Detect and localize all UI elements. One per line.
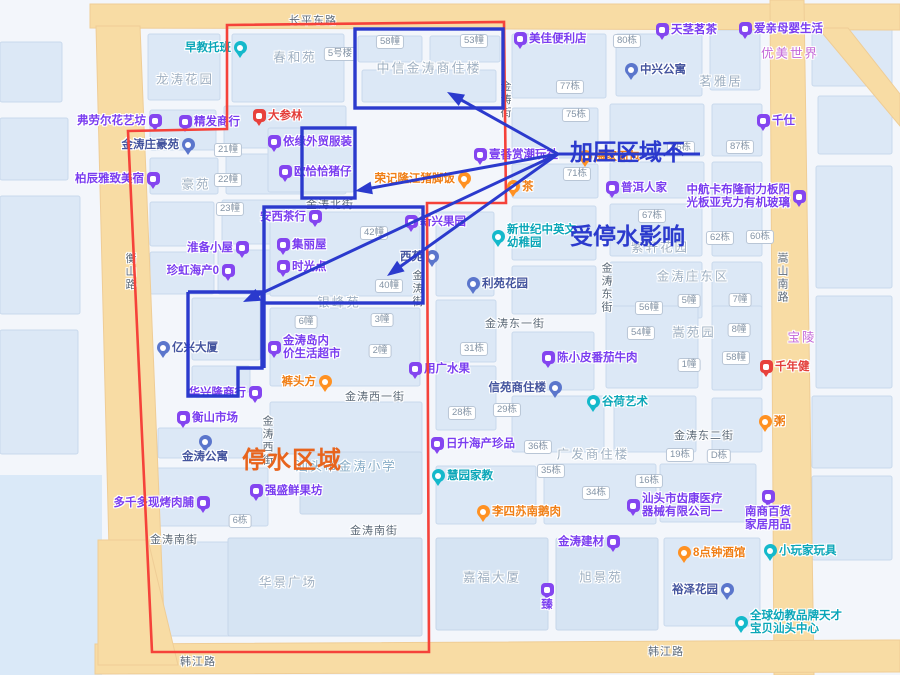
purple-pin-icon[interactable] bbox=[474, 148, 487, 161]
orange-pin-icon[interactable] bbox=[458, 172, 471, 185]
building-badge: 54幢 bbox=[627, 326, 655, 340]
road-label: 金涛街 bbox=[409, 270, 425, 309]
building-badge: 42幢 bbox=[360, 226, 388, 240]
poi-label: 强盛鲜果坊 bbox=[265, 485, 323, 498]
pressure-note-line1: 加压区域不 bbox=[570, 138, 685, 166]
poi-label: 小玩家玩具 bbox=[779, 545, 837, 558]
building-badge: 28栋 bbox=[448, 406, 476, 420]
poi-label: 千仕 bbox=[772, 115, 795, 128]
building-badge: 22幢 bbox=[214, 173, 242, 187]
purple-pin-icon[interactable] bbox=[656, 23, 669, 36]
area-label: 华景广场 bbox=[259, 572, 317, 591]
building-badge: 8幢 bbox=[728, 323, 751, 337]
area-label: 茗雅居 bbox=[699, 71, 743, 90]
area-label: 中信金涛商住楼 bbox=[376, 58, 481, 77]
building-badge: 16栋 bbox=[635, 474, 663, 488]
purple-pin-icon[interactable] bbox=[277, 260, 290, 273]
purple-pin-icon[interactable] bbox=[147, 172, 160, 185]
purple-pin-icon[interactable] bbox=[514, 32, 527, 45]
poi-label: 李四苏南鹅肉 bbox=[492, 506, 561, 519]
poi-label: 柏辰雅致美宿 bbox=[75, 173, 144, 186]
poi-label: 中航卡布隆耐力板阳 光板亚克力有机玻璃 bbox=[687, 184, 791, 210]
building-badge: 35栋 bbox=[537, 464, 565, 478]
teal-pin-icon[interactable] bbox=[587, 395, 600, 408]
blue-pin-icon[interactable] bbox=[199, 435, 212, 448]
poi-label: 粥 bbox=[774, 416, 786, 429]
purple-pin-icon[interactable] bbox=[236, 241, 249, 254]
poi-label: 弗劳尔花艺坊 bbox=[77, 115, 146, 128]
purple-pin-icon[interactable] bbox=[197, 496, 210, 509]
poi-label: 千年健 bbox=[775, 361, 810, 374]
building-badge: 23幢 bbox=[216, 202, 244, 216]
building-badge: 60栋 bbox=[746, 230, 774, 244]
blue-pin-icon[interactable] bbox=[182, 138, 195, 151]
poi-label: 多千多现烤肉脯 bbox=[114, 497, 195, 510]
road-label: 嵩山南路 bbox=[774, 252, 790, 304]
poi-label: 8点钟酒馆 bbox=[693, 547, 745, 560]
purple-pin-icon[interactable] bbox=[309, 210, 322, 223]
purple-pin-icon[interactable] bbox=[249, 386, 262, 399]
blue-pin-icon[interactable] bbox=[625, 63, 638, 76]
poi-label: 爱亲母婴生活 bbox=[754, 23, 823, 36]
poi-label: 利苑花园 bbox=[482, 278, 528, 291]
blue-pin-icon[interactable] bbox=[157, 341, 170, 354]
poi-label: 南商百货 家居用品 bbox=[745, 506, 791, 532]
building-badge: 5号楼 bbox=[324, 47, 356, 61]
blue-pin-icon[interactable] bbox=[549, 381, 562, 394]
road-label: 金涛街 bbox=[497, 81, 513, 120]
poi-label: 金涛公寓 bbox=[182, 451, 228, 464]
pressure-zone-note: 加压区域不 受停水影响 bbox=[570, 82, 685, 306]
purple-pin-icon[interactable] bbox=[542, 351, 555, 364]
poi-label: 金涛建材 bbox=[558, 536, 604, 549]
teal-pin-icon[interactable] bbox=[234, 41, 247, 54]
building-badge: 87栋 bbox=[726, 140, 754, 154]
poi-label: 裤头方 bbox=[282, 376, 317, 389]
poi-label: 天茎茗茶 bbox=[671, 24, 717, 37]
purple-pin-icon[interactable] bbox=[409, 362, 422, 375]
road-label: 金涛南街 bbox=[150, 531, 198, 547]
red-pin-icon[interactable] bbox=[760, 360, 773, 373]
poi-label: 臻 bbox=[541, 599, 553, 612]
poi-label: 大参林 bbox=[268, 110, 303, 123]
poi-label: 美佳便利店 bbox=[529, 33, 587, 46]
blue-pin-icon[interactable] bbox=[467, 277, 480, 290]
road-label: 金涛南街 bbox=[350, 522, 398, 538]
poi-label: 欧恰恰猪仔 bbox=[294, 166, 352, 179]
poi-label: 集丽屋 bbox=[292, 239, 327, 252]
pressure-note-line2: 受停水影响 bbox=[570, 222, 685, 250]
purple-pin-icon[interactable] bbox=[541, 583, 554, 596]
building-badge: 6幢 bbox=[295, 315, 318, 329]
road-label: 长平东路 bbox=[289, 12, 337, 28]
purple-pin-icon[interactable] bbox=[627, 499, 640, 512]
orange-pin-icon[interactable] bbox=[319, 375, 332, 388]
building-badge: 58幢 bbox=[376, 35, 404, 49]
purple-pin-icon[interactable] bbox=[431, 437, 444, 450]
purple-pin-icon[interactable] bbox=[405, 215, 418, 228]
poi-label: 淮备小屋 bbox=[187, 242, 233, 255]
poi-label: 金涛岛内 价生活超市 bbox=[283, 335, 341, 361]
poi-label: 用广水果 bbox=[424, 363, 470, 376]
area-label: 嘉福大厦 bbox=[463, 567, 521, 586]
road-label: 金涛东二街 bbox=[674, 427, 734, 443]
purple-pin-icon[interactable] bbox=[762, 490, 775, 503]
building-badge: 29栋 bbox=[493, 403, 521, 417]
road-label: 金涛西一街 bbox=[345, 388, 405, 404]
teal-pin-icon[interactable] bbox=[492, 230, 505, 243]
water-area bbox=[0, 475, 102, 675]
building-badge: 7幢 bbox=[729, 293, 752, 307]
poi-label: 衡山市场 bbox=[192, 412, 238, 425]
building-badge: 31栋 bbox=[460, 342, 488, 356]
purple-pin-icon[interactable] bbox=[607, 535, 620, 548]
poi-label: 谷荷艺术 bbox=[602, 396, 648, 409]
purple-pin-icon[interactable] bbox=[268, 135, 281, 148]
area-label: 龙涛花园 bbox=[156, 69, 214, 88]
orange-pin-icon[interactable] bbox=[507, 180, 520, 193]
road-label: 韩江路 bbox=[180, 653, 216, 669]
building-badge: 58幢 bbox=[722, 351, 750, 365]
area-label: 嵩苑园 bbox=[672, 322, 716, 341]
poi-label: 早教托班 bbox=[185, 42, 231, 55]
purple-pin-icon[interactable] bbox=[277, 238, 290, 251]
building-badge: 2幢 bbox=[369, 344, 392, 358]
purple-pin-icon[interactable] bbox=[268, 341, 281, 354]
red-pin-icon[interactable] bbox=[253, 109, 266, 122]
poi-label: 汕头市齿康医疗 器械有限公司一 bbox=[642, 493, 723, 519]
poi-label: 中兴公寓 bbox=[640, 64, 686, 77]
purple-pin-icon[interactable] bbox=[179, 115, 192, 128]
poi-label: 时光点 bbox=[292, 261, 327, 274]
blue-pin-icon[interactable] bbox=[426, 250, 439, 263]
area-label: 优美世界 bbox=[761, 43, 819, 62]
outage-zone-note: 停水区域 bbox=[242, 440, 342, 475]
orange-pin-icon[interactable] bbox=[477, 505, 490, 518]
purple-pin-icon[interactable] bbox=[250, 484, 263, 497]
building-badge: 40幢 bbox=[375, 279, 403, 293]
poi-label: 精发商行 bbox=[194, 116, 240, 129]
area-label: 豪苑 bbox=[181, 174, 210, 193]
poi-label: 新兴果园 bbox=[420, 216, 466, 229]
poi-label: 茶 bbox=[522, 181, 534, 194]
building-badge: 34栋 bbox=[582, 486, 610, 500]
road-label: 衡山路 bbox=[122, 253, 138, 292]
purple-pin-icon[interactable] bbox=[793, 190, 806, 203]
poi-label: 华兴隆商行 bbox=[189, 387, 247, 400]
orange-pin-icon[interactable] bbox=[678, 546, 691, 559]
poi-label: 新世纪中英文 幼稚园 bbox=[507, 224, 576, 250]
building-badge: 3幢 bbox=[371, 313, 394, 327]
map-canvas[interactable]: 加压区域不 受停水影响 停水区域 长平东路韩江路韩江路衡山路金涛北街金涛街金涛街… bbox=[0, 0, 900, 675]
building-badge: D栋 bbox=[707, 449, 731, 463]
poi-label: 亿兴大厦 bbox=[172, 342, 218, 355]
poi-label: 金涛庄豪苑 bbox=[122, 139, 180, 152]
purple-pin-icon[interactable] bbox=[757, 114, 770, 127]
poi-label: 珍虹海产0 bbox=[167, 265, 219, 278]
building-badge: 36栋 bbox=[524, 440, 552, 454]
poi-label: 壹番赏潮玩社 bbox=[489, 149, 558, 162]
basemap bbox=[0, 0, 900, 675]
purple-pin-icon[interactable] bbox=[177, 411, 190, 424]
purple-pin-icon[interactable] bbox=[739, 22, 752, 35]
building-badge: 80栋 bbox=[613, 34, 641, 48]
blue-pin-icon[interactable] bbox=[721, 583, 734, 596]
road-label: 韩江路 bbox=[648, 643, 684, 659]
poi-label: 慧园家教 bbox=[447, 470, 493, 483]
teal-pin-icon[interactable] bbox=[735, 616, 748, 629]
area-label: 旭景苑 bbox=[579, 567, 623, 586]
area-label: 宝陵 bbox=[787, 327, 816, 346]
purple-pin-icon[interactable] bbox=[149, 114, 162, 127]
area-label: 春和苑 bbox=[273, 47, 317, 66]
poi-label: 荣记隆江猪脚饭 bbox=[375, 173, 456, 186]
teal-pin-icon[interactable] bbox=[432, 469, 445, 482]
purple-pin-icon[interactable] bbox=[222, 264, 235, 277]
building-badge: 19栋 bbox=[666, 448, 694, 462]
teal-pin-icon[interactable] bbox=[764, 544, 777, 557]
poi-label: 依缘外贸服装 bbox=[283, 136, 352, 149]
poi-label: 全球幼教品牌天才 宝贝汕头中心 bbox=[750, 610, 842, 636]
orange-pin-icon[interactable] bbox=[759, 415, 772, 428]
building-badge: 1幢 bbox=[678, 358, 701, 372]
road-label: 金涛东一街 bbox=[485, 315, 545, 331]
area-label: 银峰苑 bbox=[317, 292, 361, 311]
poi-label: 日升海产珍品 bbox=[446, 438, 515, 451]
poi-label: 陈小皮番茄牛肉 bbox=[557, 352, 638, 365]
building-badge: 21幢 bbox=[214, 143, 242, 157]
building-badge: 62栋 bbox=[706, 231, 734, 245]
building-badge: 53幢 bbox=[460, 34, 488, 48]
poi-label: 裕泽花园 bbox=[672, 584, 718, 597]
poi-label: 信苑商住楼 bbox=[489, 382, 547, 395]
purple-pin-icon[interactable] bbox=[279, 165, 292, 178]
area-label: 广发商住楼 bbox=[557, 444, 630, 463]
poi-label: 安西茶行 bbox=[260, 211, 306, 224]
building-badge: 6栋 bbox=[229, 514, 252, 528]
poi-label: 西苑 bbox=[400, 251, 423, 264]
